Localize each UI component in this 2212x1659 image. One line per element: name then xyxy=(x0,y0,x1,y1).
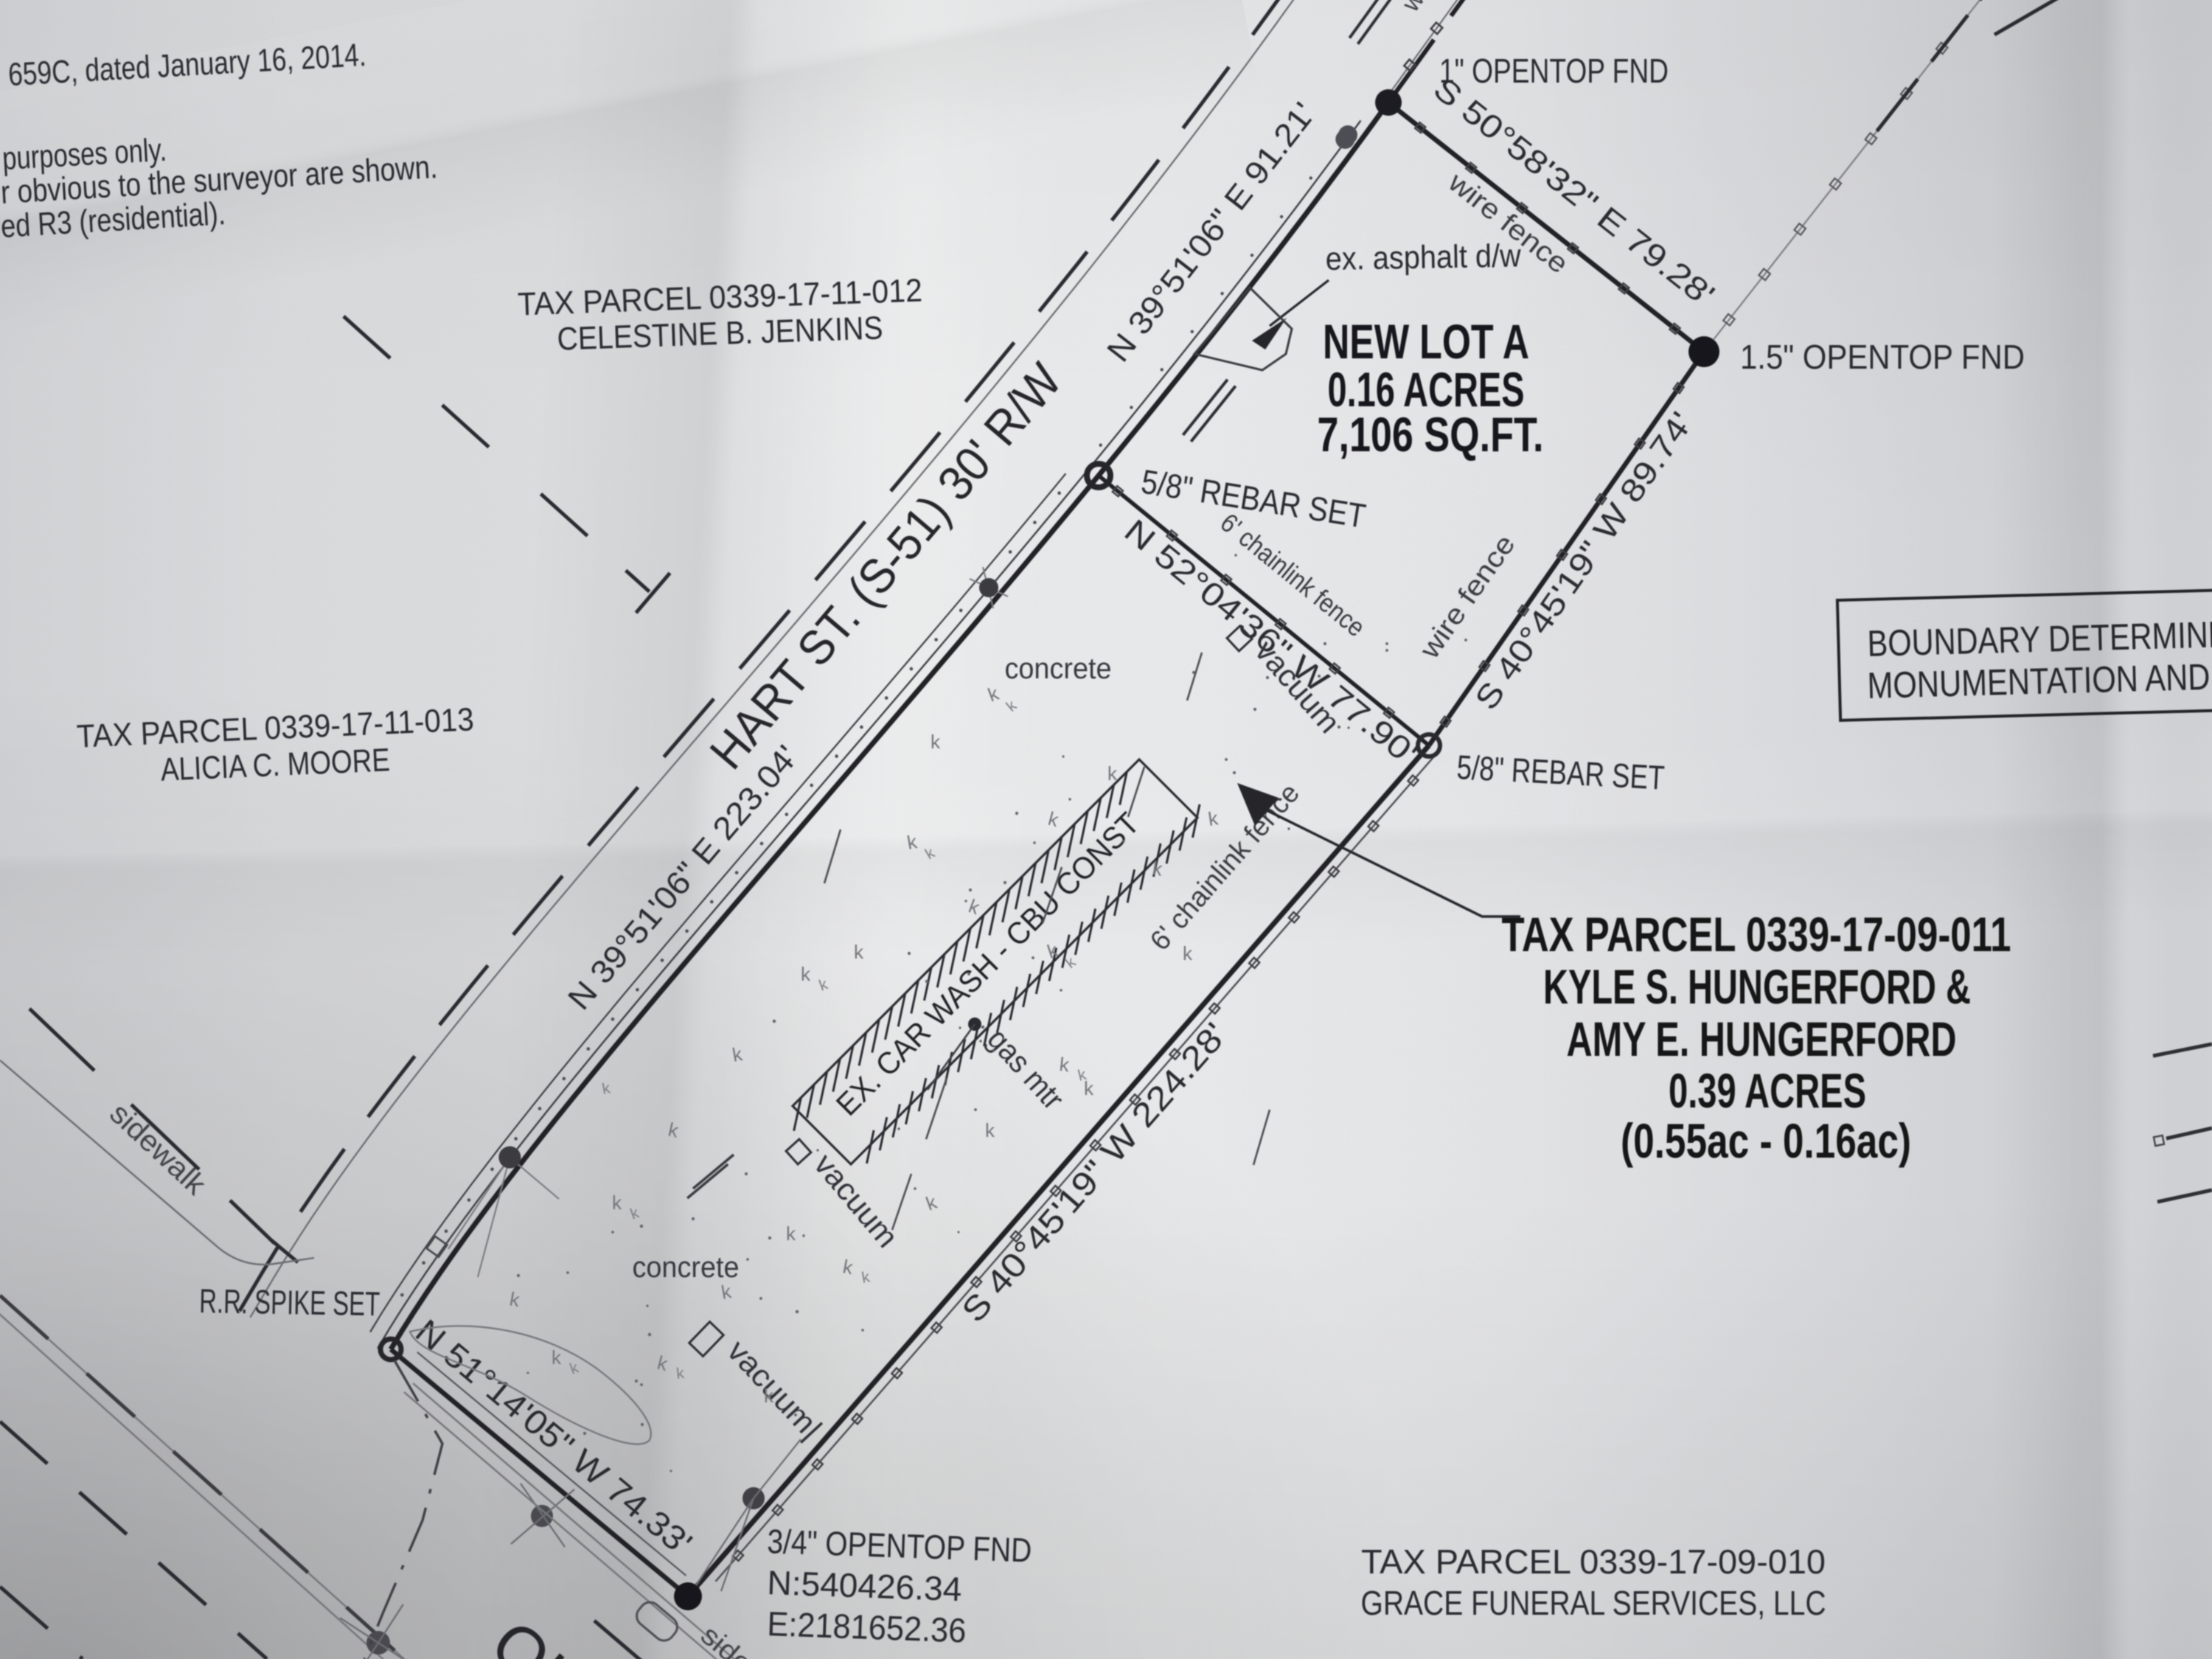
svg-text:k: k xyxy=(801,963,811,985)
svg-text:k: k xyxy=(931,731,941,753)
svg-text:(0.55ac - 0.16ac): (0.55ac - 0.16ac) xyxy=(1621,1113,1911,1168)
svg-text:1" OPENTOP FND: 1" OPENTOP FND xyxy=(1439,52,1669,90)
svg-text:TAX PARCEL 0339-17-09-011: TAX PARCEL 0339-17-09-011 xyxy=(1502,907,2011,961)
svg-text:KYLE S. HUNGERFORD &: KYLE S. HUNGERFORD & xyxy=(1543,959,1971,1014)
svg-text:E:2181652.36: E:2181652.36 xyxy=(767,1604,967,1649)
svg-text:TAX PARCEL 0339-17-09-010: TAX PARCEL 0339-17-09-010 xyxy=(1361,1543,1826,1581)
svg-text:1.5" OPENTOP FND: 1.5" OPENTOP FND xyxy=(1740,338,2025,376)
svg-text:k: k xyxy=(1107,762,1118,785)
svg-text:7,106 SQ.FT.: 7,106 SQ.FT. xyxy=(1318,407,1544,462)
svg-text:NEW LOT A: NEW LOT A xyxy=(1323,314,1529,369)
svg-text:GRACE FUNERAL SERVICES, LLC: GRACE FUNERAL SERVICES, LLC xyxy=(1361,1584,1826,1622)
svg-text:AMY E. HUNGERFORD: AMY E. HUNGERFORD xyxy=(1567,1012,1957,1066)
svg-text:k: k xyxy=(1183,942,1193,964)
svg-text:k: k xyxy=(552,1346,562,1368)
svg-text:k: k xyxy=(764,1385,774,1407)
svg-text:R.R. SPIKE SET: R.R. SPIKE SET xyxy=(199,1281,380,1323)
svg-text:k: k xyxy=(854,941,864,963)
svg-text:concrete: concrete xyxy=(1005,653,1112,685)
svg-text:concrete: concrete xyxy=(633,1251,740,1284)
svg-text:k: k xyxy=(612,1192,622,1214)
svg-text:ex. asphalt d/w: ex. asphalt d/w xyxy=(1325,237,1521,277)
svg-text:0.39 ACRES: 0.39 ACRES xyxy=(1669,1063,1866,1118)
svg-text:k: k xyxy=(786,1222,796,1245)
svg-text:k: k xyxy=(985,1119,995,1141)
svg-text:N:540426.34: N:540426.34 xyxy=(767,1563,963,1608)
